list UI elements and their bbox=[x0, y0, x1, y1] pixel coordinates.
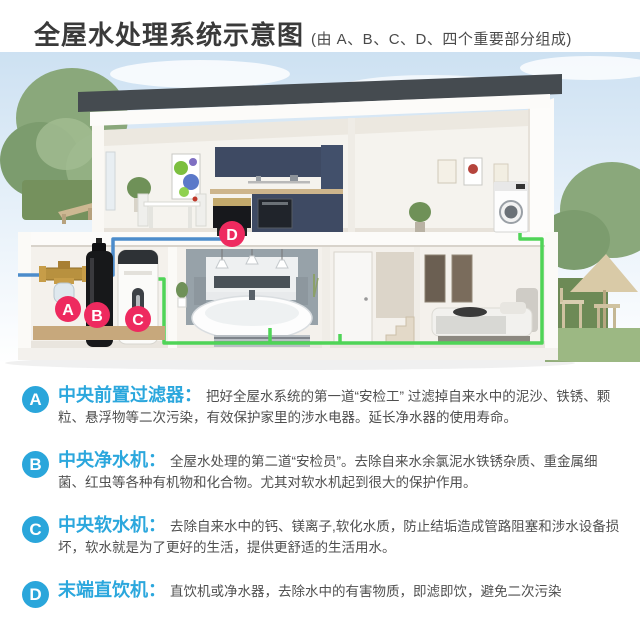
badge-d: D bbox=[22, 581, 49, 608]
badge-a: A bbox=[22, 386, 49, 413]
page-title: 全屋水处理系统示意图 bbox=[34, 20, 304, 50]
section-c: C 中央软水机：去除自来水中的钙、镁离子,软化水质，防止结垢造成管路阻塞和涉水设… bbox=[22, 515, 620, 558]
section-d-body: 直饮机或净水器，去除水中的有害物质，即滤即饮，避免二次污染 bbox=[170, 584, 562, 599]
section-d-heading: 末端直饮机： bbox=[58, 580, 166, 600]
marker-a: A bbox=[55, 296, 81, 322]
cloud bbox=[110, 60, 290, 88]
marker-c: C bbox=[125, 306, 151, 332]
section-d-text: 末端直饮机：直饮机或净水器，去除水中的有害物质，即滤即饮，避免二次污染 bbox=[58, 580, 620, 602]
page-subtitle: (由 A、B、C、D、四个重要部分组成) bbox=[311, 31, 572, 48]
section-c-text: 中央软水机：去除自来水中的钙、镁离子,软化水质，防止结垢造成管路阻塞和涉水设备损… bbox=[58, 515, 620, 558]
section-c-heading: 中央软水机： bbox=[58, 515, 166, 535]
badge-c: C bbox=[22, 516, 49, 543]
section-b: B 中央净水机：全屋水处理的第二道“安检员”。去除自来水余氯泥水铁锈杂质、重金属… bbox=[22, 450, 620, 493]
section-a-heading: 中央前置过滤器： bbox=[58, 385, 202, 405]
legend-sections: A 中央前置过滤器：把好全屋水系统的第一道“安检工” 过滤掉自来水中的泥沙、铁锈… bbox=[0, 375, 640, 602]
marker-d: D bbox=[219, 221, 245, 247]
badge-b: B bbox=[22, 451, 49, 478]
svg-text:A: A bbox=[62, 302, 74, 319]
svg-text:B: B bbox=[91, 308, 103, 325]
infographic-page: 全屋水处理系统示意图(由 A、B、C、D、四个重要部分组成) bbox=[0, 0, 640, 620]
house-cutaway-illustration: A B C D bbox=[0, 52, 640, 375]
section-d: D 末端直饮机：直饮机或净水器，去除水中的有害物质，即滤即饮，避免二次污染 bbox=[22, 580, 620, 602]
section-a-text: 中央前置过滤器：把好全屋水系统的第一道“安检工” 过滤掉自来水中的泥沙、铁锈、颗… bbox=[58, 385, 620, 428]
section-a: A 中央前置过滤器：把好全屋水系统的第一道“安检工” 过滤掉自来水中的泥沙、铁锈… bbox=[22, 385, 620, 428]
page-header: 全屋水处理系统示意图(由 A、B、C、D、四个重要部分组成) bbox=[0, 0, 640, 52]
section-b-heading: 中央净水机： bbox=[58, 450, 166, 470]
washing-machine bbox=[494, 182, 528, 232]
section-b-text: 中央净水机：全屋水处理的第二道“安检员”。去除自来水余氯泥水铁锈杂质、重金属细菌… bbox=[58, 450, 620, 493]
svg-text:D: D bbox=[226, 227, 238, 244]
marker-b: B bbox=[84, 302, 110, 328]
svg-text:C: C bbox=[132, 312, 144, 329]
